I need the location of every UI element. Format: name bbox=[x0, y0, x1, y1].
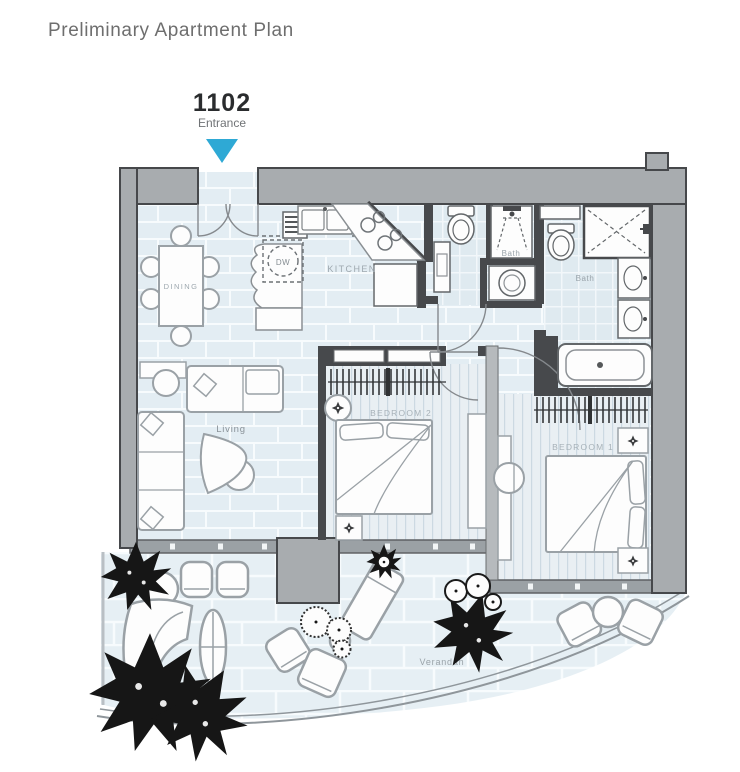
annotations: Preliminary Apartment Plan 1102 Entrance bbox=[48, 20, 294, 163]
kitchen-label: KITCHEN bbox=[327, 264, 376, 274]
counter bbox=[540, 206, 580, 219]
column-verandah bbox=[277, 538, 339, 603]
bath-master-label: Bath bbox=[576, 274, 595, 283]
pillow bbox=[340, 422, 384, 440]
unit-number: 1102 bbox=[193, 89, 251, 117]
entrance-arrow-icon bbox=[206, 139, 238, 163]
wall-top-notch bbox=[646, 153, 668, 170]
patio-chair bbox=[217, 562, 248, 597]
vanity bbox=[434, 242, 450, 292]
dresser bbox=[468, 414, 486, 528]
patio-chair bbox=[181, 562, 212, 597]
wall-left bbox=[120, 168, 137, 548]
wall-top bbox=[258, 168, 686, 204]
dining-label: DINING bbox=[164, 282, 199, 291]
window-band-bedroom1 bbox=[490, 580, 652, 593]
apartment-plan-page: DW KITCHEN DINING Living bbox=[0, 0, 740, 772]
fridge bbox=[374, 264, 417, 306]
desk bbox=[498, 436, 511, 560]
patio-table-round bbox=[593, 597, 623, 627]
page-title: Preliminary Apartment Plan bbox=[48, 20, 294, 41]
dishwasher-label: DW bbox=[276, 258, 290, 267]
pantry-scalloped bbox=[251, 244, 302, 308]
entrance-label: Entrance bbox=[198, 116, 246, 130]
bath-guest-label: Bath bbox=[502, 249, 521, 258]
side-table bbox=[153, 370, 179, 396]
living-label: Living bbox=[216, 424, 246, 435]
washer bbox=[489, 266, 535, 300]
wall-bedroom-divider bbox=[486, 346, 498, 580]
pillow bbox=[628, 460, 646, 504]
bedroom1-label: BEDROOM 1 bbox=[552, 442, 614, 452]
floor-plan-canvas: DW KITCHEN DINING Living bbox=[0, 0, 740, 772]
wall-right bbox=[652, 204, 686, 593]
floor-doorway bbox=[198, 172, 258, 204]
pillow bbox=[628, 507, 646, 549]
window-band-living bbox=[130, 540, 277, 553]
desk-chair bbox=[494, 463, 524, 493]
bedroom2-label: BEDROOM 2 bbox=[370, 408, 432, 418]
sofa-left bbox=[138, 412, 184, 530]
cabinet bbox=[256, 308, 302, 330]
